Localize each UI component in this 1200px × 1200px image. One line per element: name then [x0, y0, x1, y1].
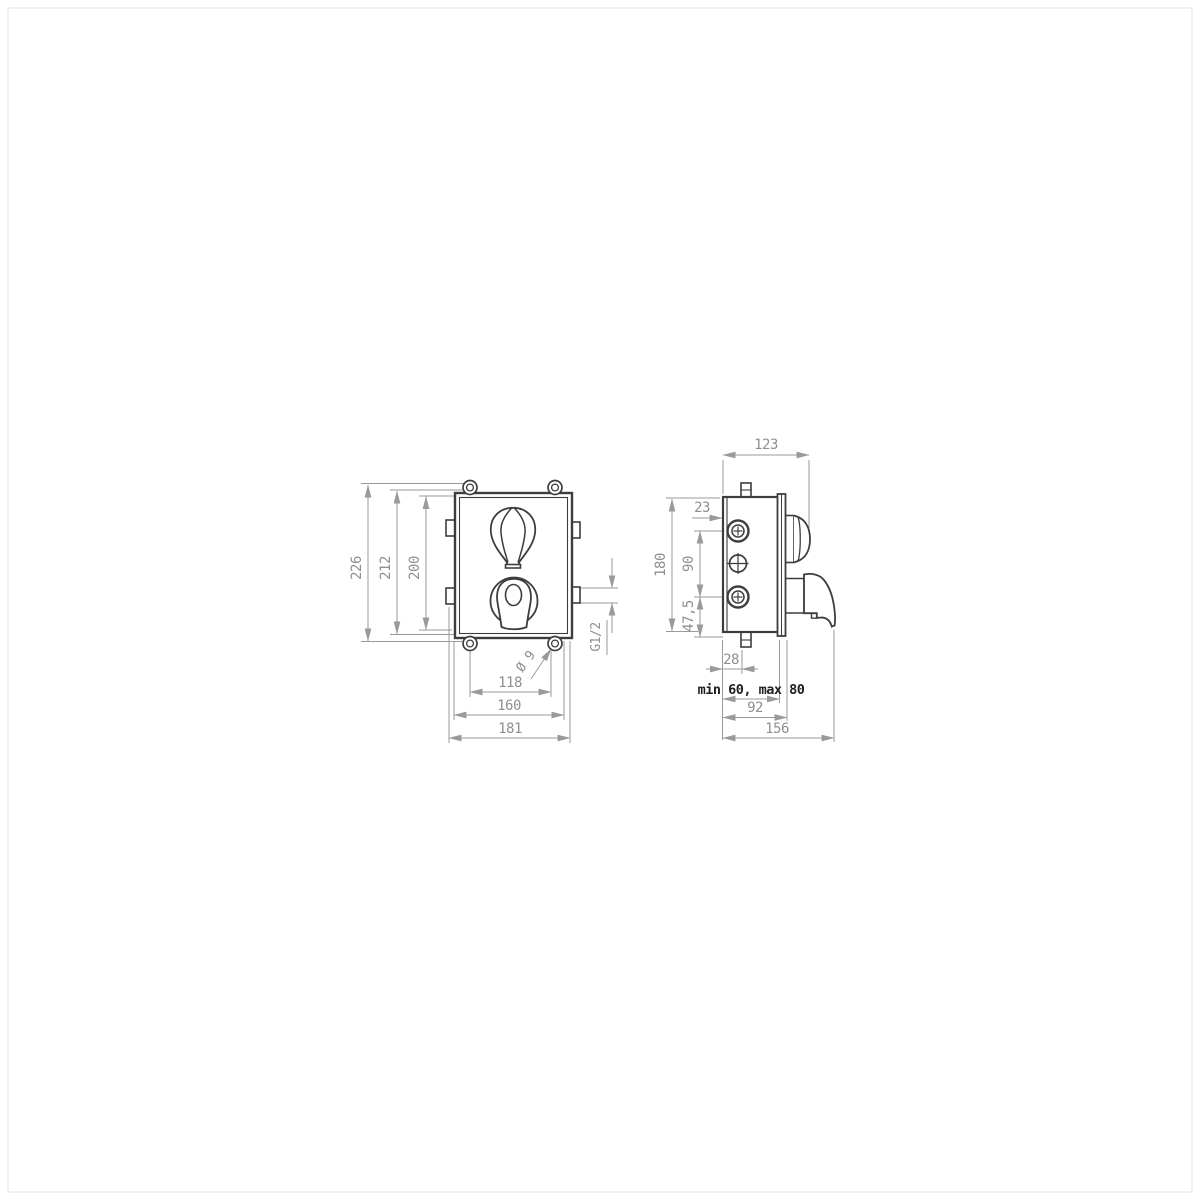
dim-front-overall-height: 226 — [349, 556, 365, 580]
front-view-body — [446, 481, 580, 651]
dim-side-port-inset: 23 — [694, 500, 710, 516]
side-view: 123 23 180 90 47,5 28 min 60, max 80 92 … — [653, 437, 835, 742]
dim-side-depth-to-lever: 156 — [765, 721, 789, 737]
dim-side-port-spacing: 90 — [681, 556, 697, 572]
dim-side-depth-to-plate: 92 — [747, 700, 763, 716]
page: 226 212 200 118 160 181 Ø 9 G1/2 — [0, 0, 1200, 1200]
dim-front-inner-height: 200 — [407, 556, 423, 580]
dim-front-body-height: 212 — [378, 556, 394, 580]
label-thread-size: G1/2 — [589, 622, 604, 651]
dim-front-overall-width: 181 — [498, 721, 522, 737]
dim-side-depth-to-handle: 123 — [754, 437, 778, 453]
dim-side-stub-offset: 28 — [723, 652, 739, 668]
technical-drawing: 226 212 200 118 160 181 Ø 9 G1/2 — [0, 0, 1200, 1200]
front-view: 226 212 200 118 160 181 Ø 9 G1/2 — [349, 481, 618, 744]
flow-lever-side — [786, 574, 836, 627]
side-view-body — [723, 483, 835, 647]
label-hole-diameter: Ø 9 — [514, 649, 539, 676]
note-install-depth: min 60, max 80 — [698, 682, 805, 698]
temperature-knob-side — [786, 516, 811, 563]
image-frame — [8, 8, 1192, 1192]
dim-side-port-to-bottom: 47,5 — [681, 600, 697, 632]
dim-front-body-width: 160 — [497, 698, 521, 714]
dim-front-hole-spacing: 118 — [498, 675, 522, 691]
dim-side-height: 180 — [653, 553, 669, 577]
